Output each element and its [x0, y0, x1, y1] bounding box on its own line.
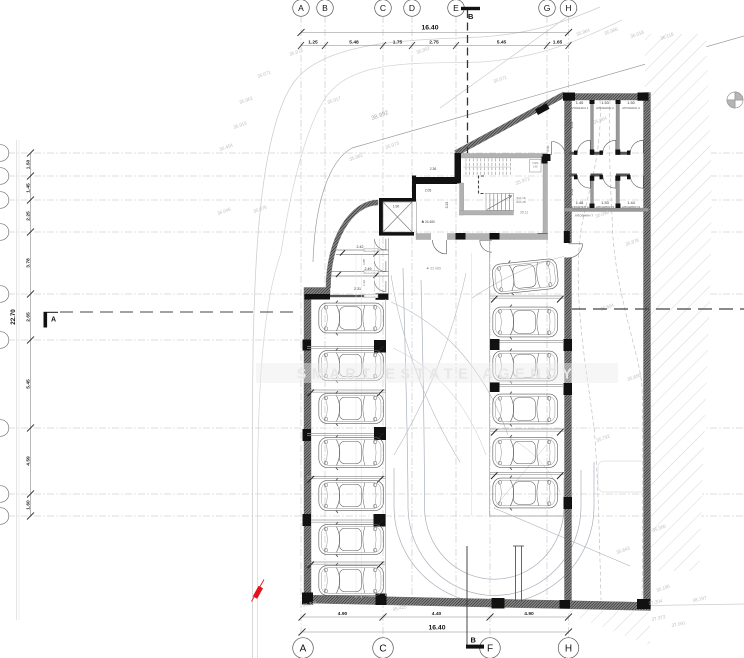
svg-text:ΑΠΟΘΗΚΗ 6: ΑΠΟΘΗΚΗ 6 [622, 205, 641, 209]
svg-text:1.50: 1.50 [26, 159, 32, 169]
svg-text:2.02: 2.02 [570, 189, 574, 196]
svg-text:ΑΠΟΘΗΚΗ 7: ΑΠΟΘΗΚΗ 7 [575, 214, 594, 218]
svg-text:2.05: 2.05 [425, 189, 432, 193]
svg-text:8x0.28: 8x0.28 [517, 200, 526, 204]
svg-text:MOTO 0.8x2.3: MOTO 0.8x2.3 [364, 250, 379, 252]
svg-text:33.985: 33.985 [430, 267, 441, 271]
svg-text:A: A [51, 317, 56, 324]
svg-text:G: G [544, 3, 551, 13]
svg-text:1.25: 1.25 [308, 40, 318, 46]
svg-text:1.05: 1.05 [362, 259, 366, 265]
svg-text:0.60: 0.60 [533, 166, 538, 169]
svg-text:24.480: 24.480 [425, 220, 435, 224]
svg-text:SMART ESTATE AGENCY: SMART ESTATE AGENCY [297, 367, 578, 383]
svg-text:16.40: 16.40 [421, 25, 438, 32]
svg-text:5.45: 5.45 [26, 379, 32, 389]
svg-text:ΑΠΟΘΗΚΗ 4: ΑΠΟΘΗΚΗ 4 [570, 205, 589, 209]
svg-text:35.11: 35.11 [520, 211, 528, 215]
svg-text:0.90: 0.90 [546, 145, 550, 151]
svg-text:A: A [298, 3, 304, 13]
svg-text:B: B [468, 12, 474, 21]
svg-text:2.31: 2.31 [354, 287, 361, 291]
svg-text:D: D [409, 3, 415, 13]
svg-text:H: H [565, 3, 571, 13]
svg-text:3.78: 3.78 [26, 258, 32, 268]
svg-text:1.45: 1.45 [26, 183, 32, 193]
svg-text:2.49: 2.49 [365, 267, 372, 271]
svg-text:1.50: 1.50 [627, 100, 635, 105]
svg-text:F: F [487, 644, 493, 655]
svg-text:H: H [565, 644, 572, 655]
svg-text:2.25: 2.25 [26, 211, 32, 221]
svg-text:B: B [322, 3, 328, 13]
svg-text:ΑΠΟΘΗΚΗ 5: ΑΠΟΘΗΚΗ 5 [596, 205, 615, 209]
svg-text:4.40: 4.40 [432, 611, 442, 617]
svg-text:2.36: 2.36 [430, 167, 437, 171]
svg-text:1.75: 1.75 [393, 40, 403, 46]
svg-text:1.90: 1.90 [393, 205, 400, 209]
svg-text:5.48: 5.48 [349, 40, 359, 46]
svg-text:1.12: 1.12 [362, 280, 366, 286]
svg-text:MOTO 0.8x2.3: MOTO 0.8x2.3 [364, 296, 379, 298]
svg-text:1.53: 1.53 [601, 100, 609, 105]
svg-text:4.90: 4.90 [338, 611, 348, 617]
svg-text:3.23: 3.23 [445, 202, 449, 209]
svg-text:5.45: 5.45 [497, 40, 507, 46]
svg-text:ΑΠΟΘΗΚΗ 3: ΑΠΟΘΗΚΗ 3 [622, 106, 640, 110]
svg-text:4.59: 4.59 [26, 456, 32, 466]
svg-text:MOTO 0.8x2.3: MOTO 0.8x2.3 [364, 272, 379, 274]
svg-text:ΑΠΟΘΗΚΗ 2: ΑΠΟΘΗΚΗ 2 [596, 106, 614, 110]
svg-text:1.60: 1.60 [26, 500, 32, 510]
svg-text:4.90: 4.90 [524, 611, 534, 617]
svg-text:C: C [380, 3, 386, 13]
svg-text:1.65: 1.65 [553, 40, 563, 46]
svg-text:2.65: 2.65 [26, 312, 32, 322]
svg-text:ΑΠΟΘΗΚΗ 1: ΑΠΟΘΗΚΗ 1 [571, 106, 589, 110]
svg-text:22.70: 22.70 [10, 309, 17, 325]
svg-text:E: E [453, 3, 459, 13]
svg-text:2.05: 2.05 [570, 122, 574, 129]
svg-text:A: A [300, 644, 307, 655]
svg-text:1.45: 1.45 [576, 100, 584, 105]
svg-text:B: B [471, 636, 477, 645]
svg-text:C: C [379, 644, 386, 655]
svg-text:16.40: 16.40 [428, 625, 445, 632]
svg-text:2.75: 2.75 [429, 40, 439, 46]
svg-text:2.42: 2.42 [357, 245, 364, 249]
